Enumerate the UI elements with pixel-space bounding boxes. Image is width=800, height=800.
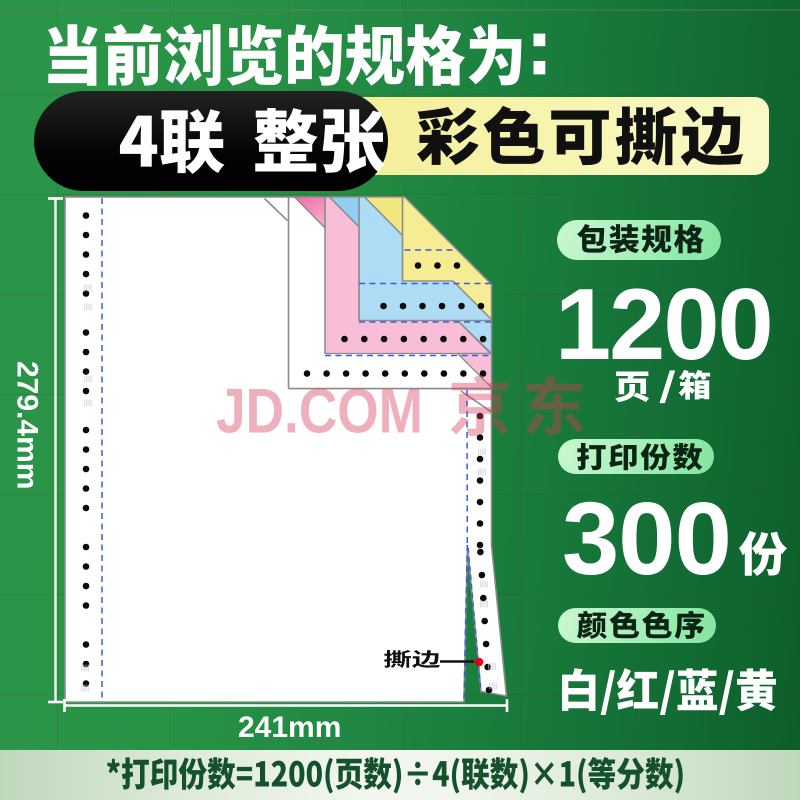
svg-text:1200: 1200: [555, 270, 772, 370]
